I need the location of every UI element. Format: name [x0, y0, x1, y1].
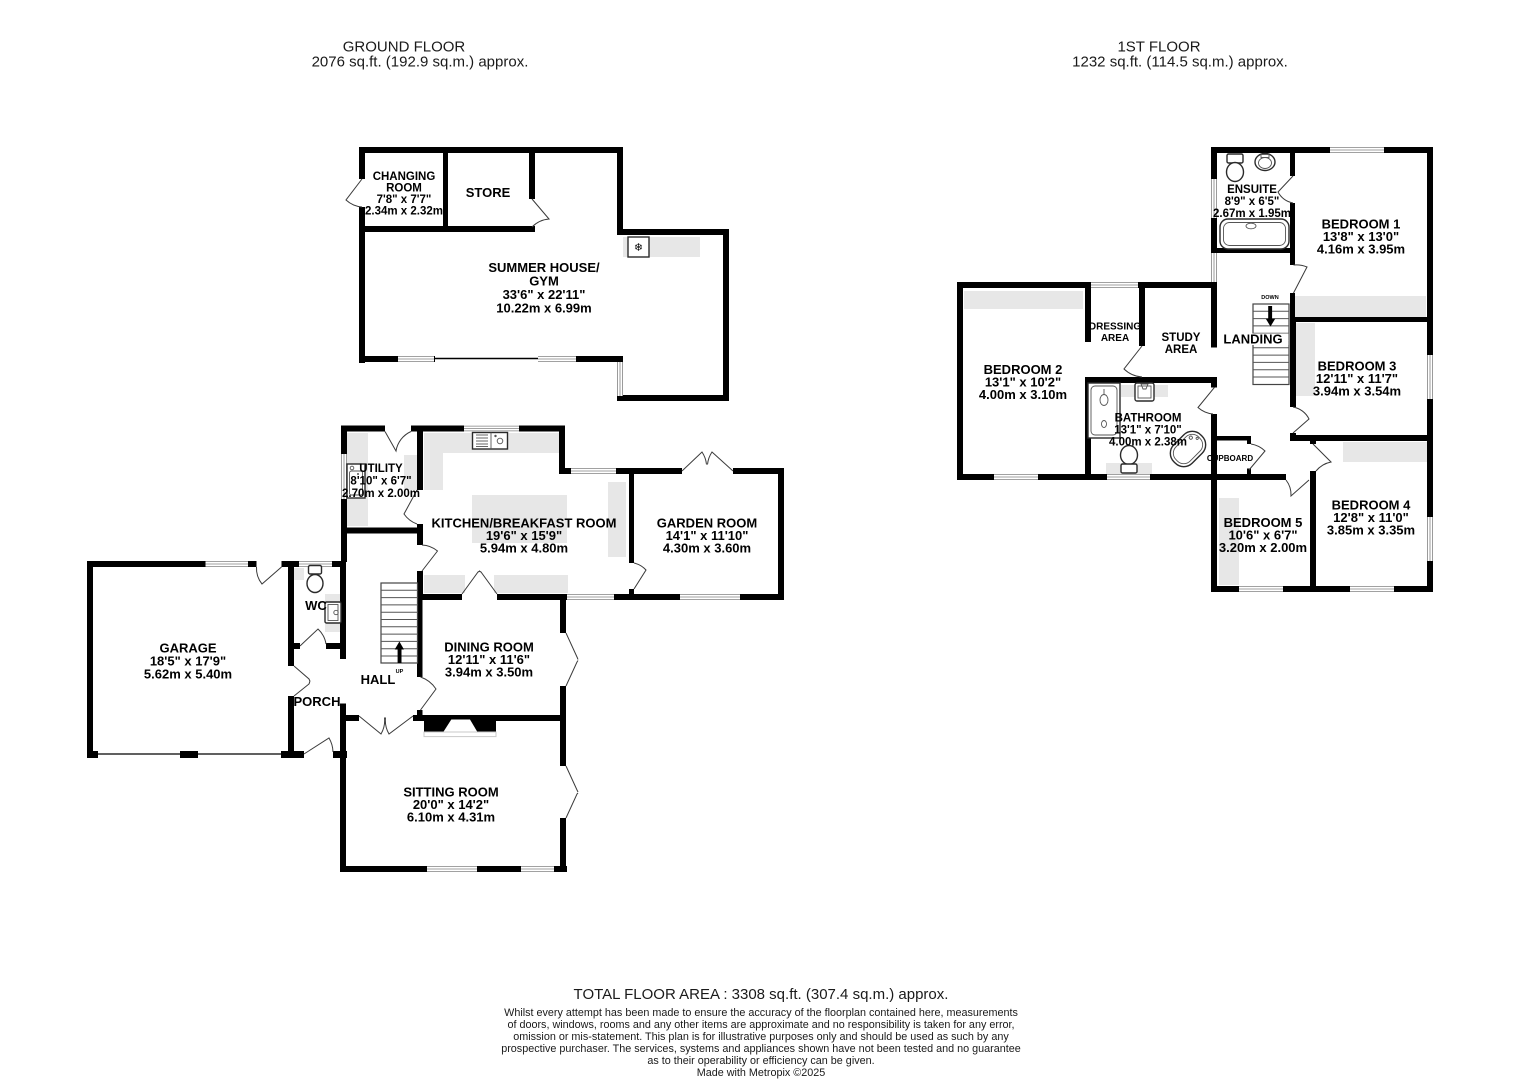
- svg-text:2076 sq.ft. (192.9 sq.m.) appr: 2076 sq.ft. (192.9 sq.m.) approx.: [312, 54, 529, 71]
- svg-text:CHANGING: CHANGING: [373, 171, 436, 183]
- svg-text:BATHROOM: BATHROOM: [1115, 413, 1182, 425]
- svg-text:CUPBOARD: CUPBOARD: [1207, 454, 1253, 463]
- svg-text:HALL: HALL: [361, 672, 396, 687]
- svg-text:3.20m x 2.00m: 3.20m x 2.00m: [1219, 540, 1307, 555]
- svg-text:ROOM: ROOM: [386, 183, 422, 195]
- svg-text:2.70m x 2.00m: 2.70m x 2.00m: [342, 488, 420, 500]
- svg-text:Whilst every attempt has been: Whilst every attempt has been made to en…: [504, 1007, 1018, 1019]
- svg-text:Made with Metropix ©2025: Made with Metropix ©2025: [697, 1067, 826, 1079]
- svg-text:1232 sq.ft. (114.5 sq.m.) appr: 1232 sq.ft. (114.5 sq.m.) approx.: [1072, 54, 1288, 71]
- svg-text:as to their operability or eff: as to their operability or efficiency ca…: [647, 1055, 874, 1067]
- svg-text:4.16m x 3.95m: 4.16m x 3.95m: [1317, 242, 1405, 257]
- svg-text:ENSUITE: ENSUITE: [1227, 184, 1277, 196]
- svg-text:4.30m x 3.60m: 4.30m x 3.60m: [663, 541, 751, 556]
- svg-text:5.62m x 5.40m: 5.62m x 5.40m: [144, 667, 232, 682]
- svg-text:STUDY: STUDY: [1162, 332, 1201, 344]
- svg-text:AREA: AREA: [1165, 344, 1198, 356]
- svg-text:6.10m x 4.31m: 6.10m x 4.31m: [407, 810, 495, 825]
- svg-text:omission or mis-statement. Thi: omission or mis-statement. This plan is …: [513, 1031, 1009, 1043]
- svg-text:STORE: STORE: [466, 185, 511, 200]
- svg-text:5.94m x 4.80m: 5.94m x 4.80m: [480, 541, 568, 556]
- svg-text:prospective purchaser. The ser: prospective purchaser. The services, sys…: [501, 1043, 1021, 1055]
- svg-text:7'8" x 7'7": 7'8" x 7'7": [377, 194, 432, 206]
- svg-text:LANDING: LANDING: [1223, 332, 1282, 347]
- svg-text:3.94m x 3.50m: 3.94m x 3.50m: [445, 665, 533, 680]
- svg-text:of doors, windows, rooms and a: of doors, windows, rooms and any other i…: [507, 1019, 1014, 1031]
- svg-text:2.67m x 1.95m: 2.67m x 1.95m: [1213, 208, 1291, 220]
- svg-text:3.94m x 3.54m: 3.94m x 3.54m: [1313, 384, 1401, 399]
- svg-text:TOTAL FLOOR AREA : 3308 sq.ft.: TOTAL FLOOR AREA : 3308 sq.ft. (307.4 sq…: [574, 986, 949, 1003]
- svg-text:DOWN: DOWN: [1261, 295, 1278, 301]
- svg-text:UTILITY: UTILITY: [359, 463, 403, 475]
- svg-text:DRESSING: DRESSING: [1089, 322, 1141, 333]
- svg-text:8'10" x 6'7": 8'10" x 6'7": [350, 476, 411, 488]
- svg-text:8'9" x 6'5": 8'9" x 6'5": [1225, 196, 1280, 208]
- svg-text:2.34m x 2.32m: 2.34m x 2.32m: [365, 206, 443, 218]
- svg-text:PORCH: PORCH: [294, 694, 341, 709]
- svg-text:4.00m x 2.38m: 4.00m x 2.38m: [1109, 437, 1187, 449]
- svg-text:❄: ❄: [634, 242, 643, 254]
- svg-text:WC: WC: [305, 598, 327, 613]
- svg-text:13'1" x 7'10": 13'1" x 7'10": [1114, 425, 1182, 437]
- svg-text:4.00m x 3.10m: 4.00m x 3.10m: [979, 387, 1067, 402]
- svg-text:10.22m x 6.99m: 10.22m x 6.99m: [496, 301, 591, 316]
- svg-text:AREA: AREA: [1101, 333, 1129, 344]
- svg-text:3.85m x 3.35m: 3.85m x 3.35m: [1327, 523, 1415, 538]
- svg-text:UP: UP: [396, 669, 404, 675]
